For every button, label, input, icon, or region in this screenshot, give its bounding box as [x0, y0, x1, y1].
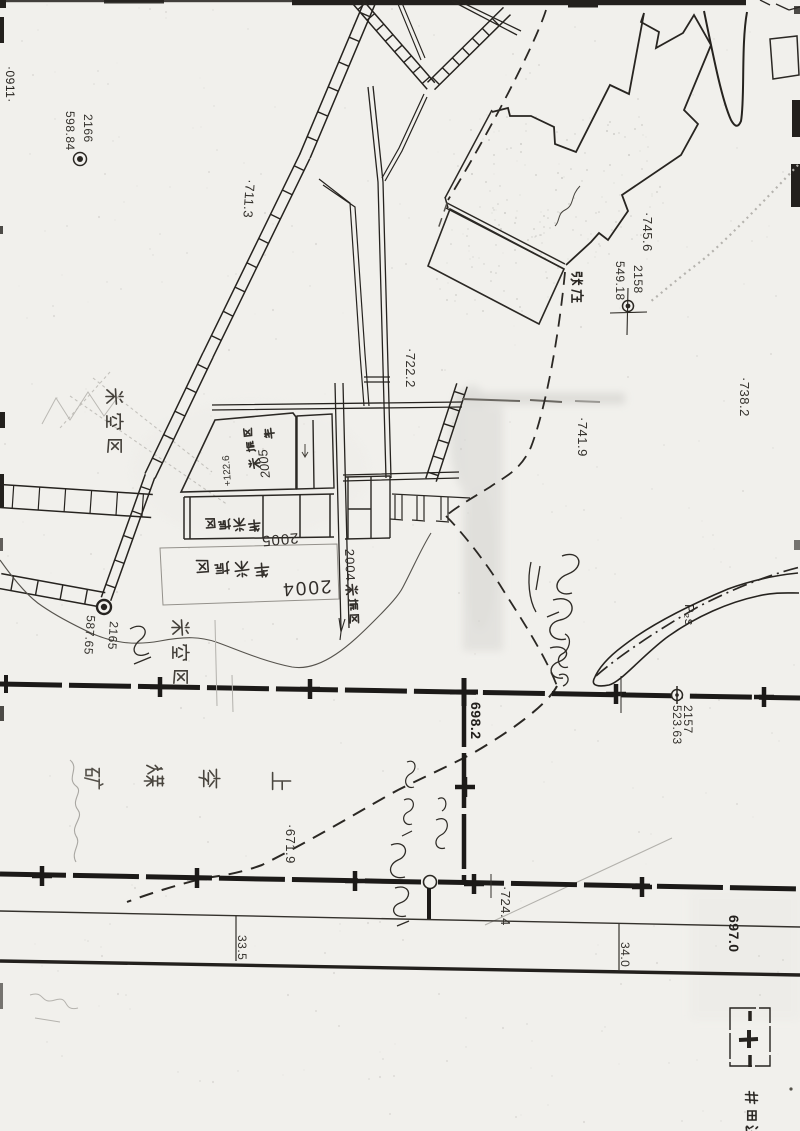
svg-text:·671.9: ·671.9: [283, 824, 298, 864]
svg-text:2004: 2004: [342, 549, 358, 582]
svg-text:2166: 2166: [81, 114, 95, 143]
svg-text:34.0: 34.0: [618, 942, 632, 967]
svg-text:2157: 2157: [681, 705, 695, 734]
svg-text:·738.2: ·738.2: [737, 377, 752, 417]
svg-text:·0911·: ·0911·: [3, 66, 17, 103]
svg-text:2158: 2158: [631, 265, 645, 294]
svg-text:33.5: 33.5: [235, 935, 249, 960]
svg-text:+122.6: +122.6: [221, 455, 234, 487]
svg-text:698.2: 698.2: [468, 702, 484, 740]
svg-text:587.65: 587.65: [81, 615, 98, 656]
svg-text:549.18: 549.18: [613, 261, 627, 301]
svg-text:·722.2: ·722.2: [403, 348, 418, 388]
svg-text:·724.4: ·724.4: [498, 886, 513, 926]
svg-text:·745.6: ·745.6: [640, 212, 655, 252]
svg-text:2005: 2005: [260, 529, 299, 549]
svg-text:·741.9: ·741.9: [575, 417, 590, 457]
svg-text:2165: 2165: [105, 621, 121, 651]
svg-text:697.0: 697.0: [726, 915, 742, 953]
svg-text:598.84: 598.84: [63, 111, 77, 151]
svg-text:2004: 2004: [280, 575, 332, 599]
svg-text:·711.3: ·711.3: [240, 179, 258, 219]
